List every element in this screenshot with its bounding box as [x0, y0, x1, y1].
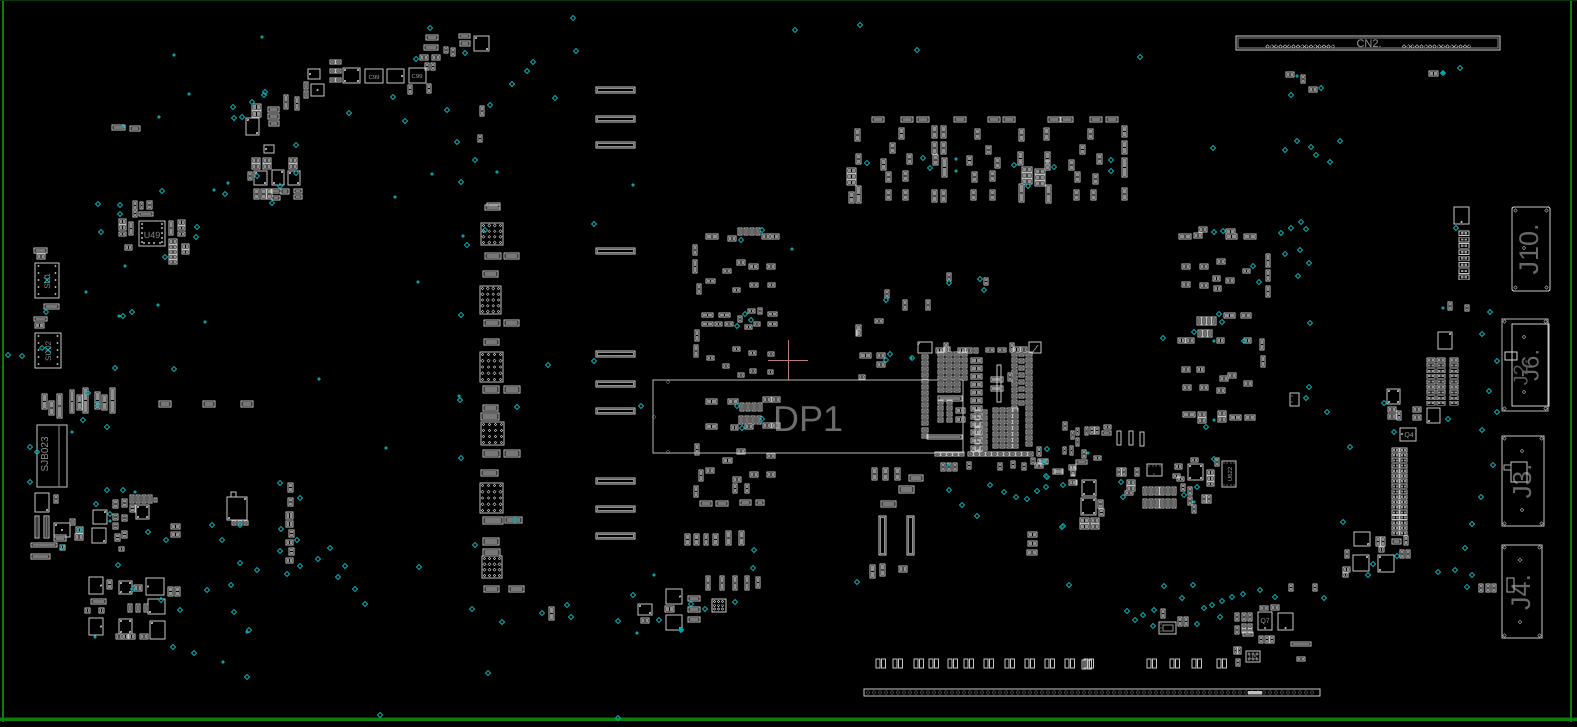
svg-text:DP1: DP1 [773, 398, 843, 439]
svg-text:C99: C99 [411, 73, 423, 80]
svg-text:J2.: J2. [1510, 359, 1532, 386]
svg-text:SJB023: SJB023 [40, 436, 51, 471]
svg-text:Q7: Q7 [1260, 618, 1269, 625]
svg-text:CN2.: CN2. [1356, 38, 1381, 50]
svg-text:U5: U5 [1249, 654, 1257, 661]
svg-text:U49: U49 [144, 230, 161, 240]
svg-text:Q4: Q4 [1404, 432, 1413, 439]
svg-text:U622: U622 [1227, 466, 1234, 481]
svg-text:C99: C99 [368, 74, 380, 81]
svg-text:J10.: J10. [1514, 223, 1544, 274]
